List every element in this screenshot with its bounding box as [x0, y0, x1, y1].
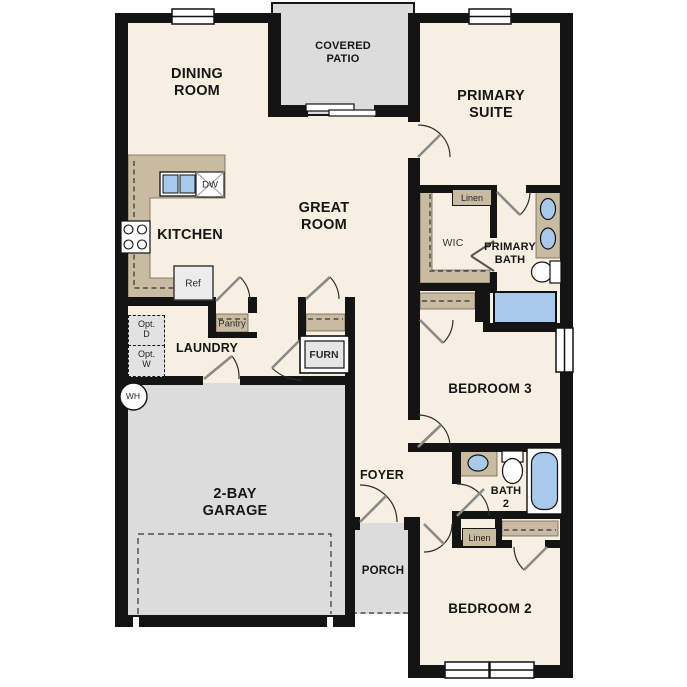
primary-vanity-sink	[541, 199, 556, 220]
dishwasher-label: DW	[202, 180, 218, 191]
primary-vanity-sink	[541, 228, 556, 249]
coat-closet-shelf	[306, 314, 345, 331]
floorplan: DINING ROOM COVERED PATIO PRIMARY SUITE …	[0, 0, 687, 687]
refrigerator-label: Ref	[185, 279, 201, 290]
room-label-laundry: LAUNDRY	[176, 341, 238, 355]
linen-closet-hall: Linen	[462, 528, 497, 547]
room-label-covered-patio: COVERED PATIO	[315, 40, 371, 66]
room-label-kitchen: KITCHEN	[157, 227, 223, 243]
pantry-label: Pantry	[218, 319, 245, 330]
room-label-bath-2: BATH 2	[491, 485, 522, 511]
bath2-sink	[468, 455, 488, 471]
room-label-porch: PORCH	[362, 565, 405, 577]
water-heater-label: WH	[126, 391, 140, 401]
room-label-dining-room: DINING ROOM	[171, 66, 223, 100]
optional-dryer: Opt. D	[128, 315, 165, 347]
bedroom2-closet-shelf	[502, 521, 558, 536]
room-label-primary-suite: PRIMARY SUITE	[457, 88, 525, 122]
room-label-bedroom-2: BEDROOM 2	[448, 601, 532, 616]
primary-shower	[494, 292, 556, 323]
room-label-foyer: FOYER	[360, 468, 404, 482]
room-label-wic: WIC	[442, 237, 463, 249]
linen-closet-primary: Linen	[452, 189, 492, 206]
room-label-great-room: GREAT ROOM	[299, 200, 350, 234]
optional-washer: Opt. W	[128, 345, 165, 377]
patio-slider-door	[329, 110, 376, 116]
floorplan-drawing	[0, 0, 687, 687]
room-label-bedroom-3: BEDROOM 3	[448, 381, 532, 396]
garage-door-jamb	[133, 617, 139, 627]
furnace-label: FURN	[309, 349, 338, 361]
garage-door-jamb	[327, 617, 333, 627]
room-label-primary-bath: PRIMARY BATH	[484, 241, 536, 267]
room-label-garage: 2-BAY GARAGE	[203, 486, 268, 520]
